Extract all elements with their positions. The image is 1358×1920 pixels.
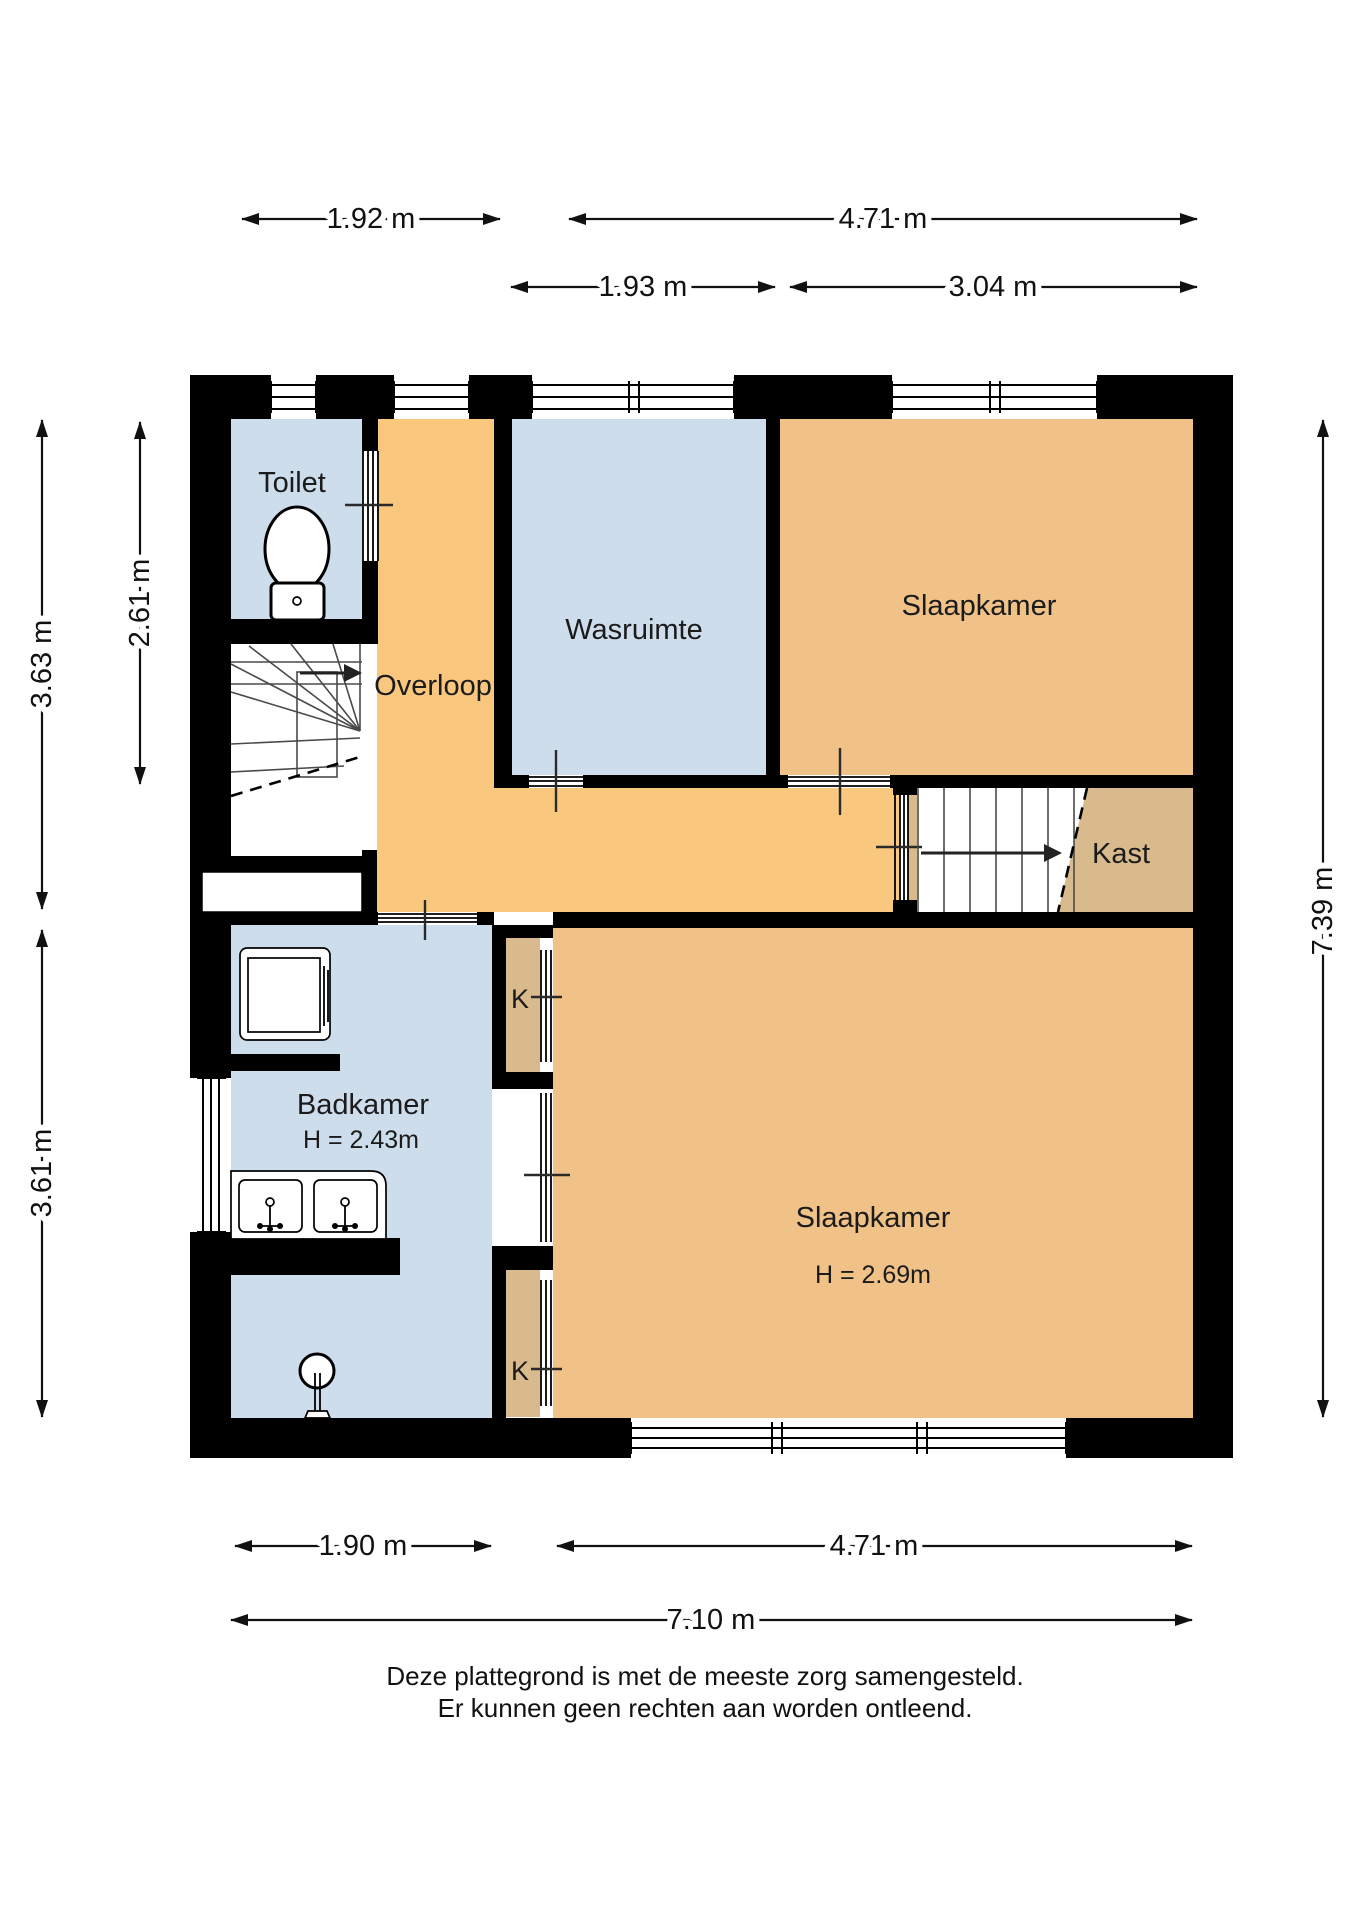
- wall-slaapkamer-beneden-north: [553, 912, 1193, 928]
- wall-badkamer-east-lower: [492, 1270, 506, 1418]
- wall-stub-sink: [231, 1238, 400, 1275]
- room-label-toilet: Toilet: [258, 467, 326, 499]
- wall-right: [1193, 419, 1233, 1418]
- room-label-overloop: Overloop: [374, 670, 492, 702]
- wall-toilet-east-lower: [362, 561, 378, 644]
- window-overloop: [394, 381, 469, 413]
- room-height-badkamer: H = 2.43m: [303, 1126, 419, 1154]
- room-slaapkamer-beneden-fill: [553, 928, 1193, 1418]
- wall-closet-k1-cap-bottom: [506, 1072, 553, 1089]
- door-closet-k-onder: [541, 1280, 551, 1406]
- window-wasruimte: [532, 381, 734, 413]
- disclaimer-line-1: Deze plattegrond is met de meeste zorg s…: [386, 1661, 1023, 1691]
- dim-label-bottom-1a: 1.90 m: [319, 1530, 408, 1562]
- wall-wasruimte-slaapkamer: [766, 419, 780, 775]
- wall-south-band-1: [494, 775, 529, 788]
- disclaimer: Deze plattegrond is met de meeste zorg s…: [386, 1661, 1023, 1723]
- wall-badkamer-east-upper: [492, 925, 506, 1089]
- room-overloop-fill: [377, 419, 494, 788]
- window-slaapkamer-boven: [892, 381, 1097, 413]
- dim-label-bottom-1b: 4.71 m: [830, 1530, 919, 1562]
- hallway-fill: [377, 788, 900, 912]
- disclaimer-line-2: Er kunnen geen rechten aan worden ontlee…: [438, 1693, 973, 1723]
- wall-left-upper: [190, 419, 231, 1078]
- wall-hall-south-2: [477, 912, 494, 925]
- room-wasruimte-fill: [512, 419, 766, 775]
- toilet-fixture: [265, 507, 329, 620]
- window-toilet: [271, 381, 316, 413]
- wall-stair-bottom: [231, 856, 362, 872]
- wall-south-band-2: [583, 775, 788, 788]
- window-badkamer: [197, 1078, 226, 1232]
- wall-top-pier-5: [1097, 375, 1233, 419]
- wall-top-pier-3: [469, 375, 532, 419]
- wall-closet-bottom: [202, 912, 362, 925]
- wall-atticstair-door-cap-top: [893, 788, 917, 795]
- dim-label-top-1a: 1.92 m: [327, 203, 416, 235]
- wall-bottom-left: [190, 1418, 631, 1458]
- wall-left-lower: [190, 1232, 231, 1418]
- wall-atticstair-door-cap-bottom: [893, 900, 917, 912]
- wall-top-pier-1: [190, 375, 271, 419]
- room-height-slaapkamer-beneden: H = 2.69m: [815, 1261, 931, 1289]
- attic-stairs-up-arrow-icon: [921, 844, 1062, 862]
- wall-south-band-3: [890, 775, 1193, 788]
- dim-label-top-2a: 1.93 m: [599, 271, 688, 303]
- wall-toilet-south: [190, 619, 362, 644]
- room-label-slaapkamer-boven: Slaapkamer: [902, 590, 1057, 622]
- window-slaapkamer-beneden: [631, 1422, 1066, 1454]
- washing-machine-fixture: [240, 948, 330, 1040]
- room-label-kast: Kast: [1092, 838, 1150, 870]
- wall-overloop-wasruimte: [494, 419, 512, 775]
- stairs-attic: [918, 788, 1087, 912]
- room-label-wasruimte: Wasruimte: [565, 614, 703, 646]
- room-label-slaapkamer-beneden: Slaapkamer: [796, 1202, 951, 1234]
- stairs-main: [231, 644, 362, 796]
- k-boven-text: K: [511, 984, 529, 1014]
- dim-label-left-lower: 3.61 m: [26, 1129, 58, 1218]
- room-label-badkamer: Badkamer: [297, 1089, 430, 1121]
- washbasin-fixture: [231, 1171, 386, 1239]
- wall-hall-south-1: [362, 912, 378, 925]
- closet-k-onder-fill: [506, 1270, 540, 1417]
- dim-label-left-upper: 3.63 m: [26, 620, 58, 709]
- wall-bottom-right: [1066, 1418, 1233, 1458]
- dim-label-top-1b: 4.71 m: [839, 203, 928, 235]
- dim-label-right: 7.39 m: [1307, 867, 1339, 956]
- dim-label-top-2b: 3.04 m: [949, 271, 1038, 303]
- floorplan-page: Toilet Overloop Wasruimte Slaapkamer Kas…: [0, 0, 1358, 1920]
- k-onder-text: K: [511, 1356, 529, 1386]
- understairs-void: [202, 872, 362, 912]
- wall-stub-washer: [231, 1054, 340, 1071]
- wall-closet-k1-cap-top: [506, 925, 553, 938]
- wall-top-pier-2: [316, 375, 394, 419]
- wall-top-pier-4: [734, 375, 892, 419]
- wall-toilet-east-upper: [362, 419, 378, 451]
- wall-closet-k2-cap-top: [492, 1246, 553, 1270]
- dim-label-bottom-2: 7.10 m: [667, 1604, 756, 1636]
- floor-plan: Toilet Overloop Wasruimte Slaapkamer Kas…: [0, 0, 1358, 1920]
- dim-label-left-inner: 2.61 m: [124, 559, 156, 648]
- door-closet-k-boven: [541, 950, 551, 1062]
